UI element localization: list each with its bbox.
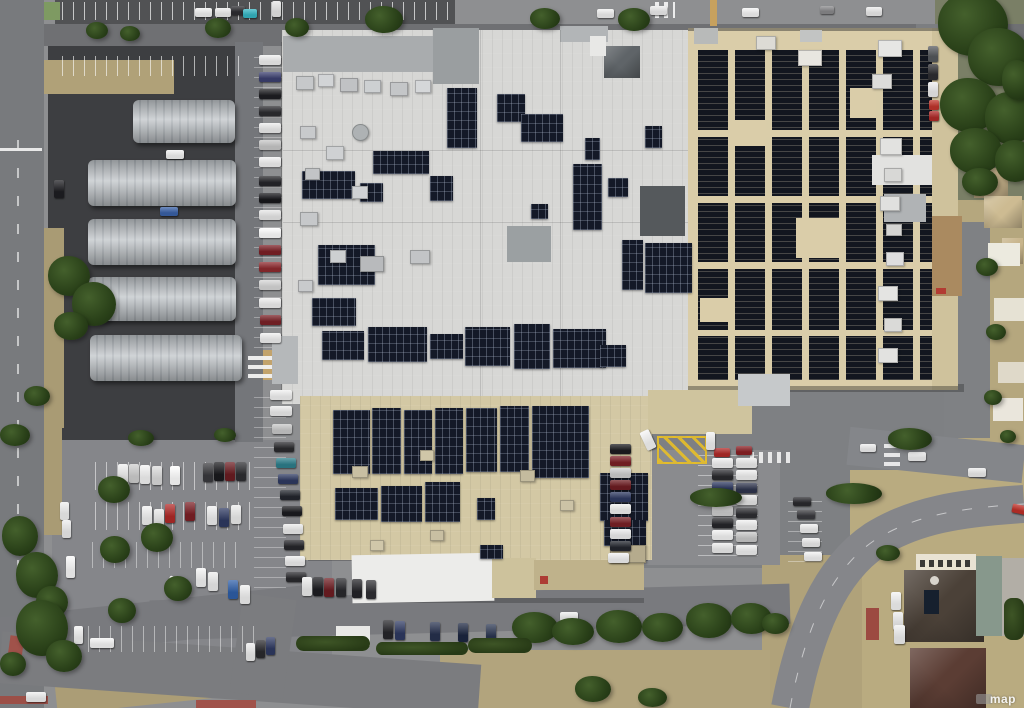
aerial-photo: map	[0, 0, 1024, 708]
watermark-box	[0, 0, 1024, 708]
imagery-watermark: map	[990, 692, 1016, 706]
